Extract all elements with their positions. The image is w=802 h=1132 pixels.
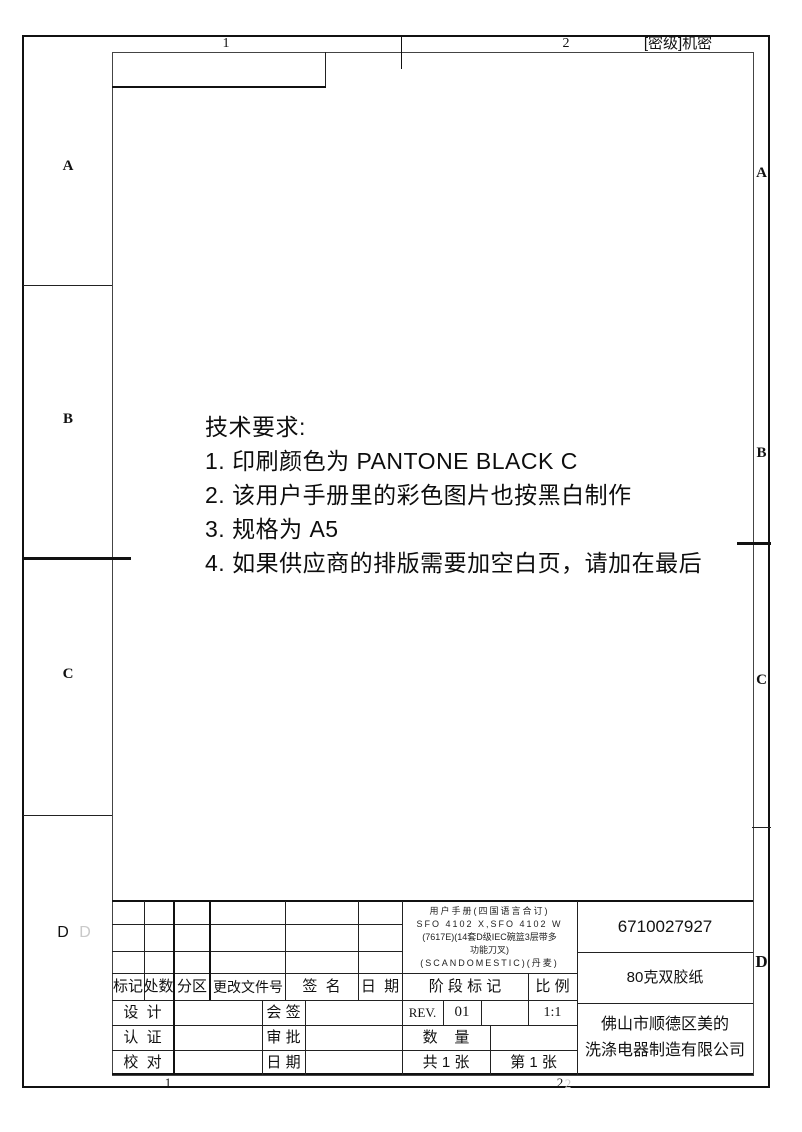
- zone-row-a-right: A: [751, 164, 772, 182]
- zone-col-1-top: 1: [200, 36, 252, 52]
- quantity-label: 数 量: [402, 1025, 490, 1050]
- top-zone-divider: [401, 35, 402, 69]
- drawing-sheet: 1 2 [密级]机密 A B C D D A B C D 1 2 2 技术要求:…: [0, 0, 802, 1132]
- header-count: 处数: [144, 973, 173, 1000]
- zone-row-c-left: C: [53, 665, 83, 683]
- label-proofread: 校 对: [112, 1050, 173, 1075]
- col-line: [305, 1000, 306, 1075]
- revision-strip-bottom-edge: [112, 86, 326, 88]
- left-zone-divider-cd: [23, 815, 112, 816]
- label-design: 设 计: [112, 1000, 173, 1025]
- sheets-total: 共 1 张: [402, 1050, 490, 1075]
- drawing-title-line: 用户手册(四国语言合订): [430, 905, 550, 918]
- zone-col-1-bottom: 1: [158, 1076, 178, 1089]
- security-label: [密级]机密: [612, 35, 744, 52]
- right-zone-divider-cd: [752, 827, 771, 828]
- drawing-title-line: (7617E)(14套D级IEC碗篮3层带多: [422, 931, 557, 944]
- zone-row-d-ghost: D: [70, 924, 100, 942]
- company-name: 佛山市顺德区美的 洗涤电器制造有限公司: [577, 1003, 753, 1073]
- scale-value: 1:1: [528, 1000, 577, 1025]
- rev-label: REV.: [402, 1000, 443, 1025]
- label-date: 日 期: [262, 1050, 305, 1075]
- header-row-bottom-line: [112, 1000, 577, 1001]
- company-name-line: 佛山市顺德区美的: [601, 1012, 729, 1038]
- technical-requirements: 技术要求: 1. 印刷颜色为 PANTONE BLACK C 2. 该用户手册里…: [205, 410, 765, 580]
- label-countersign: 会 签: [262, 1000, 305, 1025]
- sign-row-line: [112, 1025, 577, 1026]
- zone-row-d-right: D: [751, 952, 772, 970]
- drawing-title-line: SFO 4102 X,SFO 4102 W: [416, 918, 562, 931]
- tech-requirement-item: 3. 规格为 A5: [205, 512, 765, 546]
- left-zone-divider-ab: [23, 285, 112, 286]
- zone-row-b-left: B: [53, 410, 83, 428]
- company-name-line: 洗涤电器制造有限公司: [585, 1038, 745, 1064]
- zone-col-2-top: 2: [540, 36, 592, 52]
- sheet-number: 第 1 张: [490, 1050, 577, 1075]
- rev-value: 01: [443, 1000, 481, 1025]
- left-center-mark: [22, 557, 131, 560]
- header-scale: 比 例: [528, 973, 577, 1000]
- header-date: 日 期: [358, 973, 402, 1000]
- tech-requirement-item: 2. 该用户手册里的彩色图片也按黑白制作: [205, 478, 765, 512]
- label-certify: 认 证: [112, 1025, 173, 1050]
- part-number: 6710027927: [577, 901, 753, 952]
- revision-strip-right-edge: [325, 52, 326, 87]
- tech-requirement-item: 4. 如果供应商的排版需要加空白页，请加在最后: [205, 546, 765, 580]
- paper-spec: 80克双胶纸: [577, 952, 753, 1003]
- drawing-title-line: 功能刀叉): [470, 944, 509, 957]
- label-review: 审 批: [262, 1025, 305, 1050]
- header-mark: 标记: [112, 973, 144, 1000]
- col-line: [481, 1000, 482, 1025]
- header-signature: 签 名: [285, 973, 358, 1000]
- zone-row-c-right: C: [751, 671, 772, 689]
- header-zone: 分区: [175, 973, 209, 1000]
- drawing-title-line: (SCANDOMESTIC)(丹麦): [420, 957, 559, 970]
- header-change-doc-no: 更改文件号: [211, 973, 285, 1000]
- drawing-title: 用户手册(四国语言合订) SFO 4102 X,SFO 4102 W (7617…: [402, 901, 577, 973]
- zone-col-2-bottom-ghost: 2: [558, 1077, 578, 1090]
- zone-row-a-left: A: [53, 157, 83, 175]
- tech-requirement-item: 1. 印刷颜色为 PANTONE BLACK C: [205, 444, 765, 478]
- tech-requirements-heading: 技术要求:: [205, 410, 765, 444]
- header-stage-mark: 阶 段 标 记: [402, 973, 528, 1000]
